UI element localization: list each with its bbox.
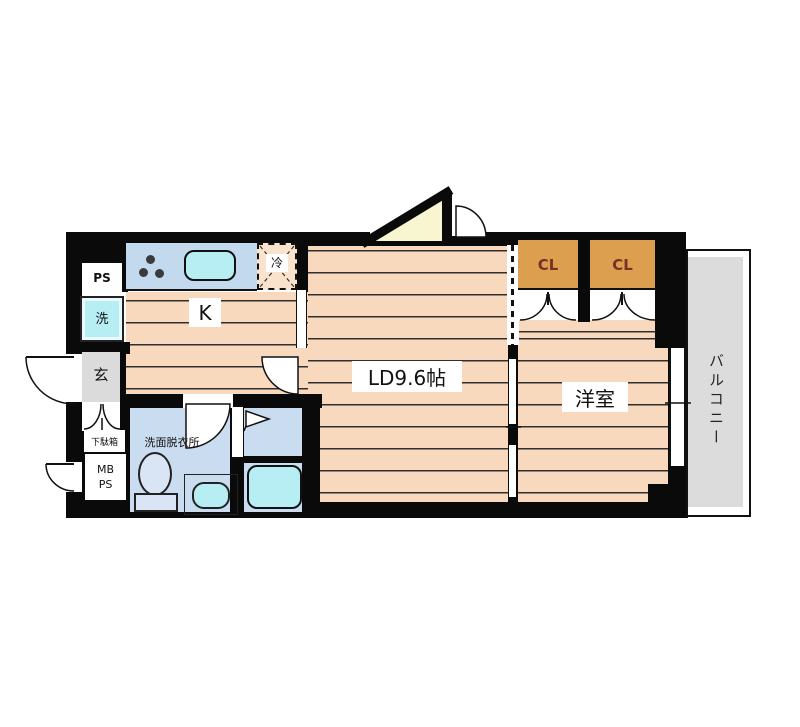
shoe-cabinet-label-box: 下駄箱 [84,430,125,452]
entrance-label: 玄 [82,362,120,388]
entrance-door-arc [26,357,74,404]
closet-right-label: CL [590,240,655,290]
floor-plan: PS 洗 K 冷 玄 下駄箱 MB PS 洗面脱衣所 LD9.6帖 洋室 CL … [0,0,800,727]
meter-box-label-line1: MB [97,463,114,476]
living-dining-label: LD9.6帖 [368,362,446,391]
western-room-label-box: 洋室 [562,382,628,412]
refrigerator-label: 冷 [266,254,288,272]
bath-folding-door-tail [244,426,246,431]
pipe-space-label: PS [93,271,110,285]
shoe-door-arc-left [84,404,101,429]
balcony-label: バルコニー [688,340,743,460]
living-door-swing [262,357,298,394]
pipe-space-label-box: PS [82,263,122,292]
closet-right-door-arc-2 [624,294,655,320]
closet-left-door-arc-1 [520,294,547,320]
meter-box-door-arc [46,464,74,491]
top-door-swing [456,206,486,237]
meter-box-label-box: MB PS [85,454,126,500]
kitchen-label-box: K [189,298,221,327]
western-room-label: 洋室 [575,383,615,412]
closet-left-label: CL [518,240,578,290]
washroom-label: 洗面脱衣所 [133,435,211,449]
kitchen-label: K [198,301,211,325]
shoe-door-arc-right [103,404,120,429]
closet-right-door-arc-1 [592,294,621,320]
closet-left-door-arc-2 [549,294,576,320]
shoe-cabinet-label: 下駄箱 [91,435,118,448]
living-dining-label-box: LD9.6帖 [352,361,462,392]
meter-box-label-line2: PS [99,478,113,491]
washing-machine-label: 洗 [80,296,124,342]
bath-folding-door-symbol [246,411,269,427]
